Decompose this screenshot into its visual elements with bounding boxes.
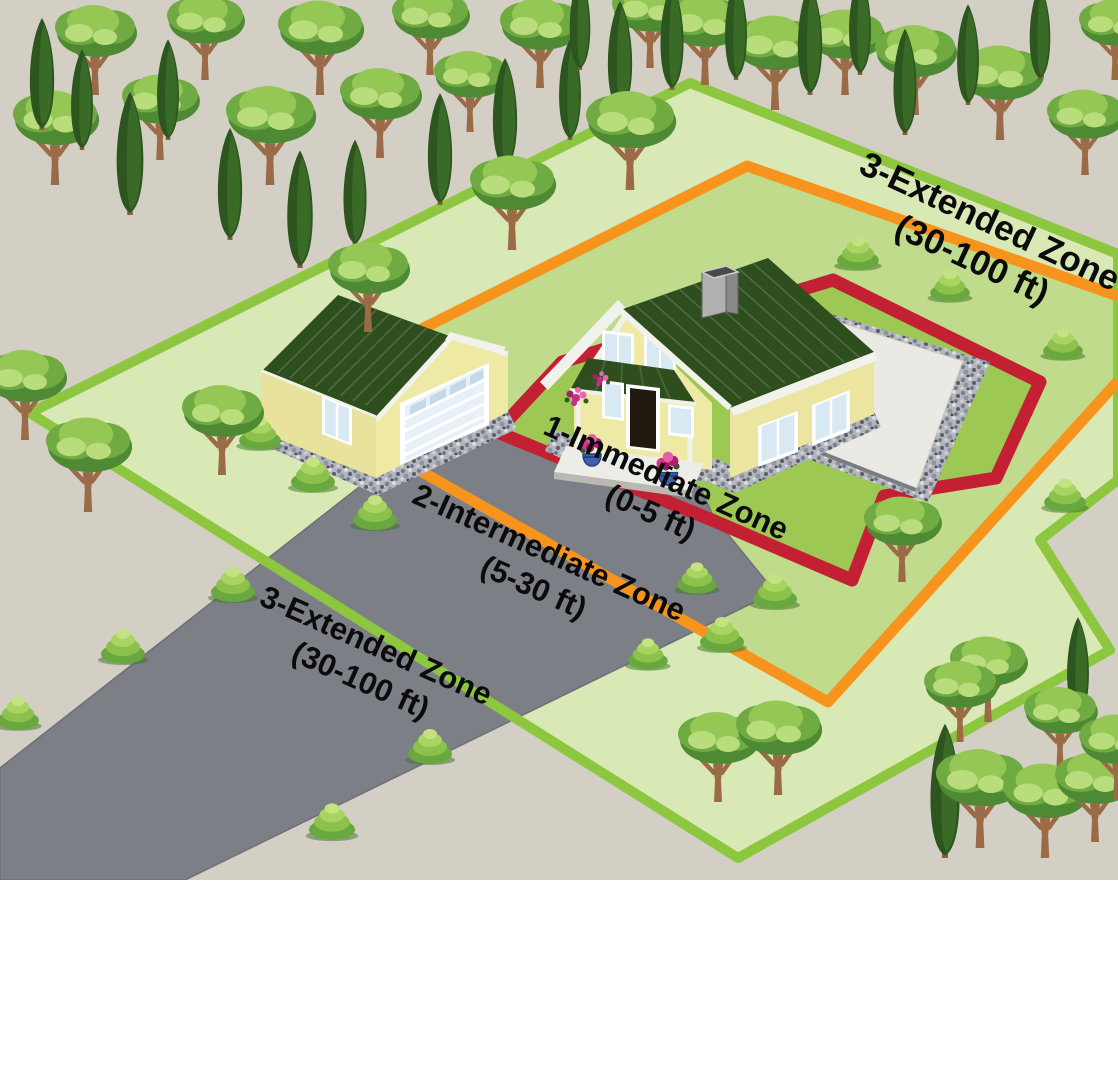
defensible-space-diagram: 1-Immediate Zone (0-5 ft) 2-Intermediate…: [0, 0, 1118, 1080]
house-front-window-right: [668, 404, 694, 438]
chimney: [702, 266, 738, 318]
house-front-window-left: [602, 380, 624, 421]
legend: 1 – Immediate Zone (0 to 5 ft): Install …: [0, 880, 1118, 1080]
site-illustration: 1-Immediate Zone (0-5 ft) 2-Intermediate…: [0, 0, 1118, 880]
